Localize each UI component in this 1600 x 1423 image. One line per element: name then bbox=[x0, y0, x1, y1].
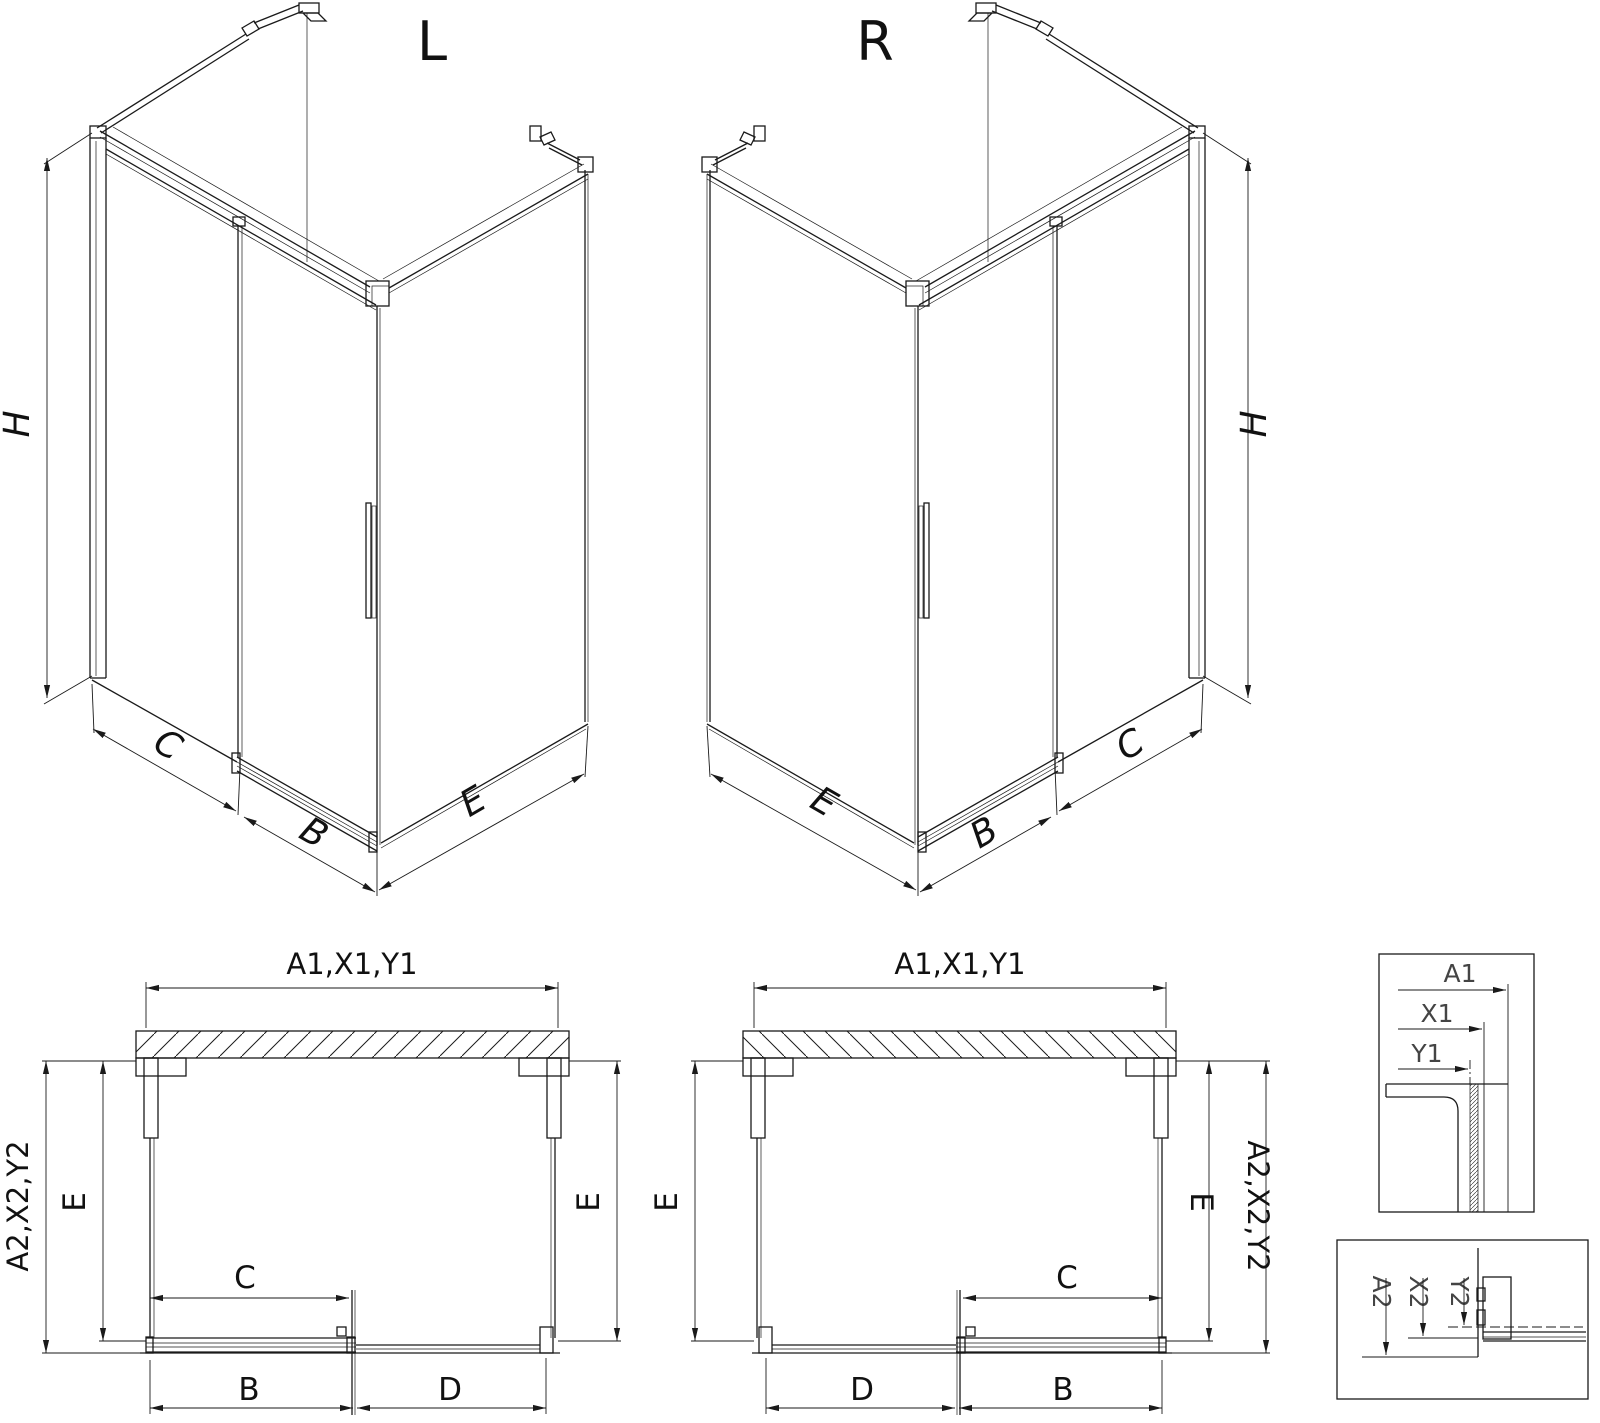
plan-right-opening-label: C bbox=[1056, 1260, 1078, 1296]
plan-right-e-left-label: E bbox=[649, 1192, 685, 1212]
plan-right-e-right-label: E bbox=[1183, 1192, 1219, 1212]
detail-a1-label: A1 bbox=[1443, 959, 1476, 988]
plan-right-fixed-label: D bbox=[850, 1372, 874, 1408]
detail-box-width: A1 X1 Y1 bbox=[1379, 954, 1534, 1212]
iso-left-height-label: H bbox=[0, 410, 38, 437]
plan-right-width-label: A1,X1,Y1 bbox=[894, 947, 1025, 981]
plan-left-e-right-label: E bbox=[571, 1192, 607, 1212]
detail-x1-label: X1 bbox=[1420, 999, 1453, 1028]
plan-left-width-label: A1,X1,Y1 bbox=[286, 947, 417, 981]
detail-depth-border bbox=[1337, 1240, 1588, 1399]
plan-right-door-label: B bbox=[1052, 1372, 1073, 1408]
plan-left-e-left-label: E bbox=[57, 1192, 93, 1212]
detail-box-depth: A2 X2 Y2 bbox=[1337, 1240, 1588, 1399]
detail-y2-label: Y2 bbox=[1445, 1275, 1474, 1307]
detail-x2-label: X2 bbox=[1404, 1275, 1433, 1308]
plan-view-left: A1,X1,Y1 A2,X2,Y2 E E C B D bbox=[1, 947, 621, 1415]
detail-glass-strip bbox=[1470, 1084, 1478, 1212]
detail-width-border bbox=[1379, 954, 1534, 1212]
detail-wall-section bbox=[1386, 1084, 1508, 1212]
iso-left-door-label: B bbox=[293, 809, 335, 857]
plan-left-opening-label: C bbox=[234, 1260, 256, 1296]
detail-a2-label: A2 bbox=[1367, 1275, 1396, 1308]
technical-drawing-canvas: L H C B E R H E B C A1,X1,Y1 A2,X2,Y2 E … bbox=[0, 0, 1600, 1423]
plan-left-fixed-label: D bbox=[438, 1372, 462, 1408]
iso-left-fixed-label: C bbox=[147, 721, 190, 770]
iso-right-geometry bbox=[702, 3, 1251, 896]
iso-left-title: L bbox=[417, 10, 447, 73]
iso-view-right: R H E B C bbox=[702, 3, 1275, 896]
iso-right-title: R bbox=[856, 10, 894, 73]
plan-left-geometry bbox=[42, 982, 621, 1415]
plan-right-depth-label: A2,X2,Y2 bbox=[1241, 1140, 1275, 1271]
iso-right-height-label: H bbox=[1234, 410, 1275, 437]
plan-view-right: A1,X1,Y1 E E A2,X2,Y2 C B D bbox=[649, 947, 1275, 1415]
iso-view-left: L H C B E bbox=[0, 3, 593, 896]
detail-track-section bbox=[1477, 1248, 1586, 1357]
plan-left-door-label: B bbox=[238, 1372, 259, 1408]
iso-right-side-label: E bbox=[804, 779, 844, 826]
iso-left-side-label: E bbox=[453, 778, 493, 825]
plan-left-depth-label: A2,X2,Y2 bbox=[1, 1140, 35, 1271]
detail-y1-label: Y1 bbox=[1410, 1039, 1442, 1068]
iso-left-geometry bbox=[44, 3, 593, 896]
